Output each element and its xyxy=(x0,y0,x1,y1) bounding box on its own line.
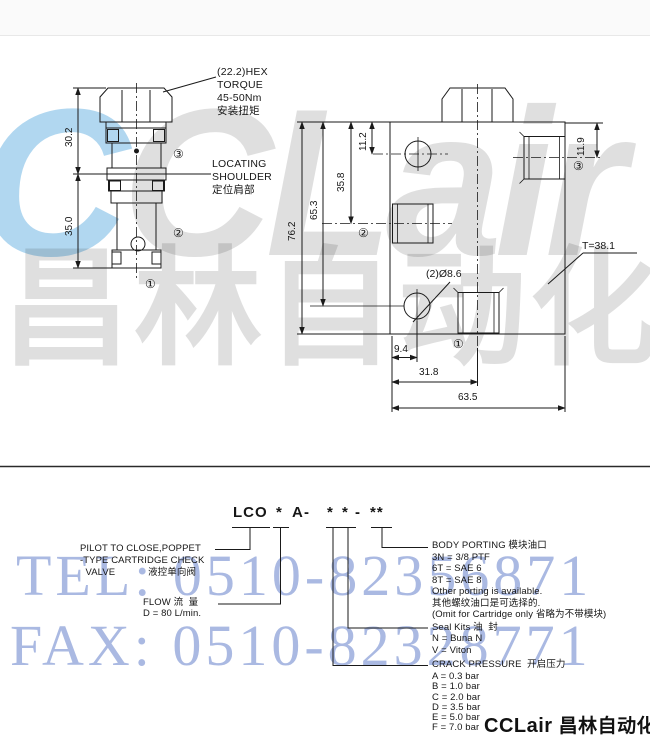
dim-11-9: 11.9 xyxy=(576,137,587,156)
code-dash2: - xyxy=(355,504,361,521)
port-1-marker-body: ① xyxy=(453,338,464,350)
locating-shoulder-note: LOCATING SHOULDER 定位肩部 xyxy=(212,158,272,197)
code-crack-star: * xyxy=(327,504,334,521)
dim-30-2: 30.2 xyxy=(64,128,75,147)
code-dash1: - xyxy=(304,504,310,521)
seal-kit-options: Seal Kits 油 封 N = Buna N V = Viton xyxy=(432,622,498,656)
body-porting-options: BODY PORTING 模块油口 3N = 3/8 PTF 6T = SAE … xyxy=(432,540,606,621)
company-logo-cn: 昌林自动化 xyxy=(559,716,650,737)
dim-11-2: 11.2 xyxy=(358,132,369,151)
port-2-marker-valve: ② xyxy=(173,227,184,239)
company-logo-en: CCLair xyxy=(484,715,553,737)
dim-63-5: 63.5 xyxy=(458,392,477,403)
hex-torque-note: (22.2)HEX TORQUE 45-50Nm 安装扭矩 xyxy=(217,66,268,118)
code-series: LCO xyxy=(233,504,268,521)
dim-hole: (2)Ø8.6 xyxy=(426,268,462,280)
code-a: A xyxy=(292,504,304,521)
datasheet-page: CCLair 昌林自动化 TEL: 0510-82356871 FAX: 051… xyxy=(0,0,650,750)
crack-pressure-options: A = 0.3 bar B = 1.0 bar C = 2.0 bar D = … xyxy=(432,672,480,734)
dim-76-2: 76.2 xyxy=(287,222,298,241)
port-2-marker-body: ② xyxy=(358,227,369,239)
dim-35-8: 35.8 xyxy=(336,173,347,192)
technical-drawing-geometry xyxy=(0,0,650,750)
port-3-marker-body: ③ xyxy=(573,160,584,172)
crack-pressure-title: CRACK PRESSURE 开启压力 xyxy=(432,659,565,671)
code-flow-star: * xyxy=(276,504,283,521)
dim-thickness: T=38.1 xyxy=(582,240,615,252)
company-logo: CCLair 昌林自动化 xyxy=(484,711,650,738)
flow-description: FLOW 流 量 D = 80 L/min. xyxy=(143,597,201,619)
dim-35-0: 35.0 xyxy=(64,217,75,236)
dim-9-4: 9.4 xyxy=(394,344,408,355)
code-porting-stars: ** xyxy=(370,504,384,521)
port-1-marker-valve: ① xyxy=(145,278,156,290)
pilot-description: PILOT TO CLOSE,POPPET -TYPE CARTRIDGE CH… xyxy=(80,543,204,579)
dim-65-3: 65.3 xyxy=(309,201,320,220)
port-3-marker-valve: ③ xyxy=(173,148,184,160)
dim-31-8: 31.8 xyxy=(419,367,438,378)
code-seal-star: * xyxy=(342,504,349,521)
